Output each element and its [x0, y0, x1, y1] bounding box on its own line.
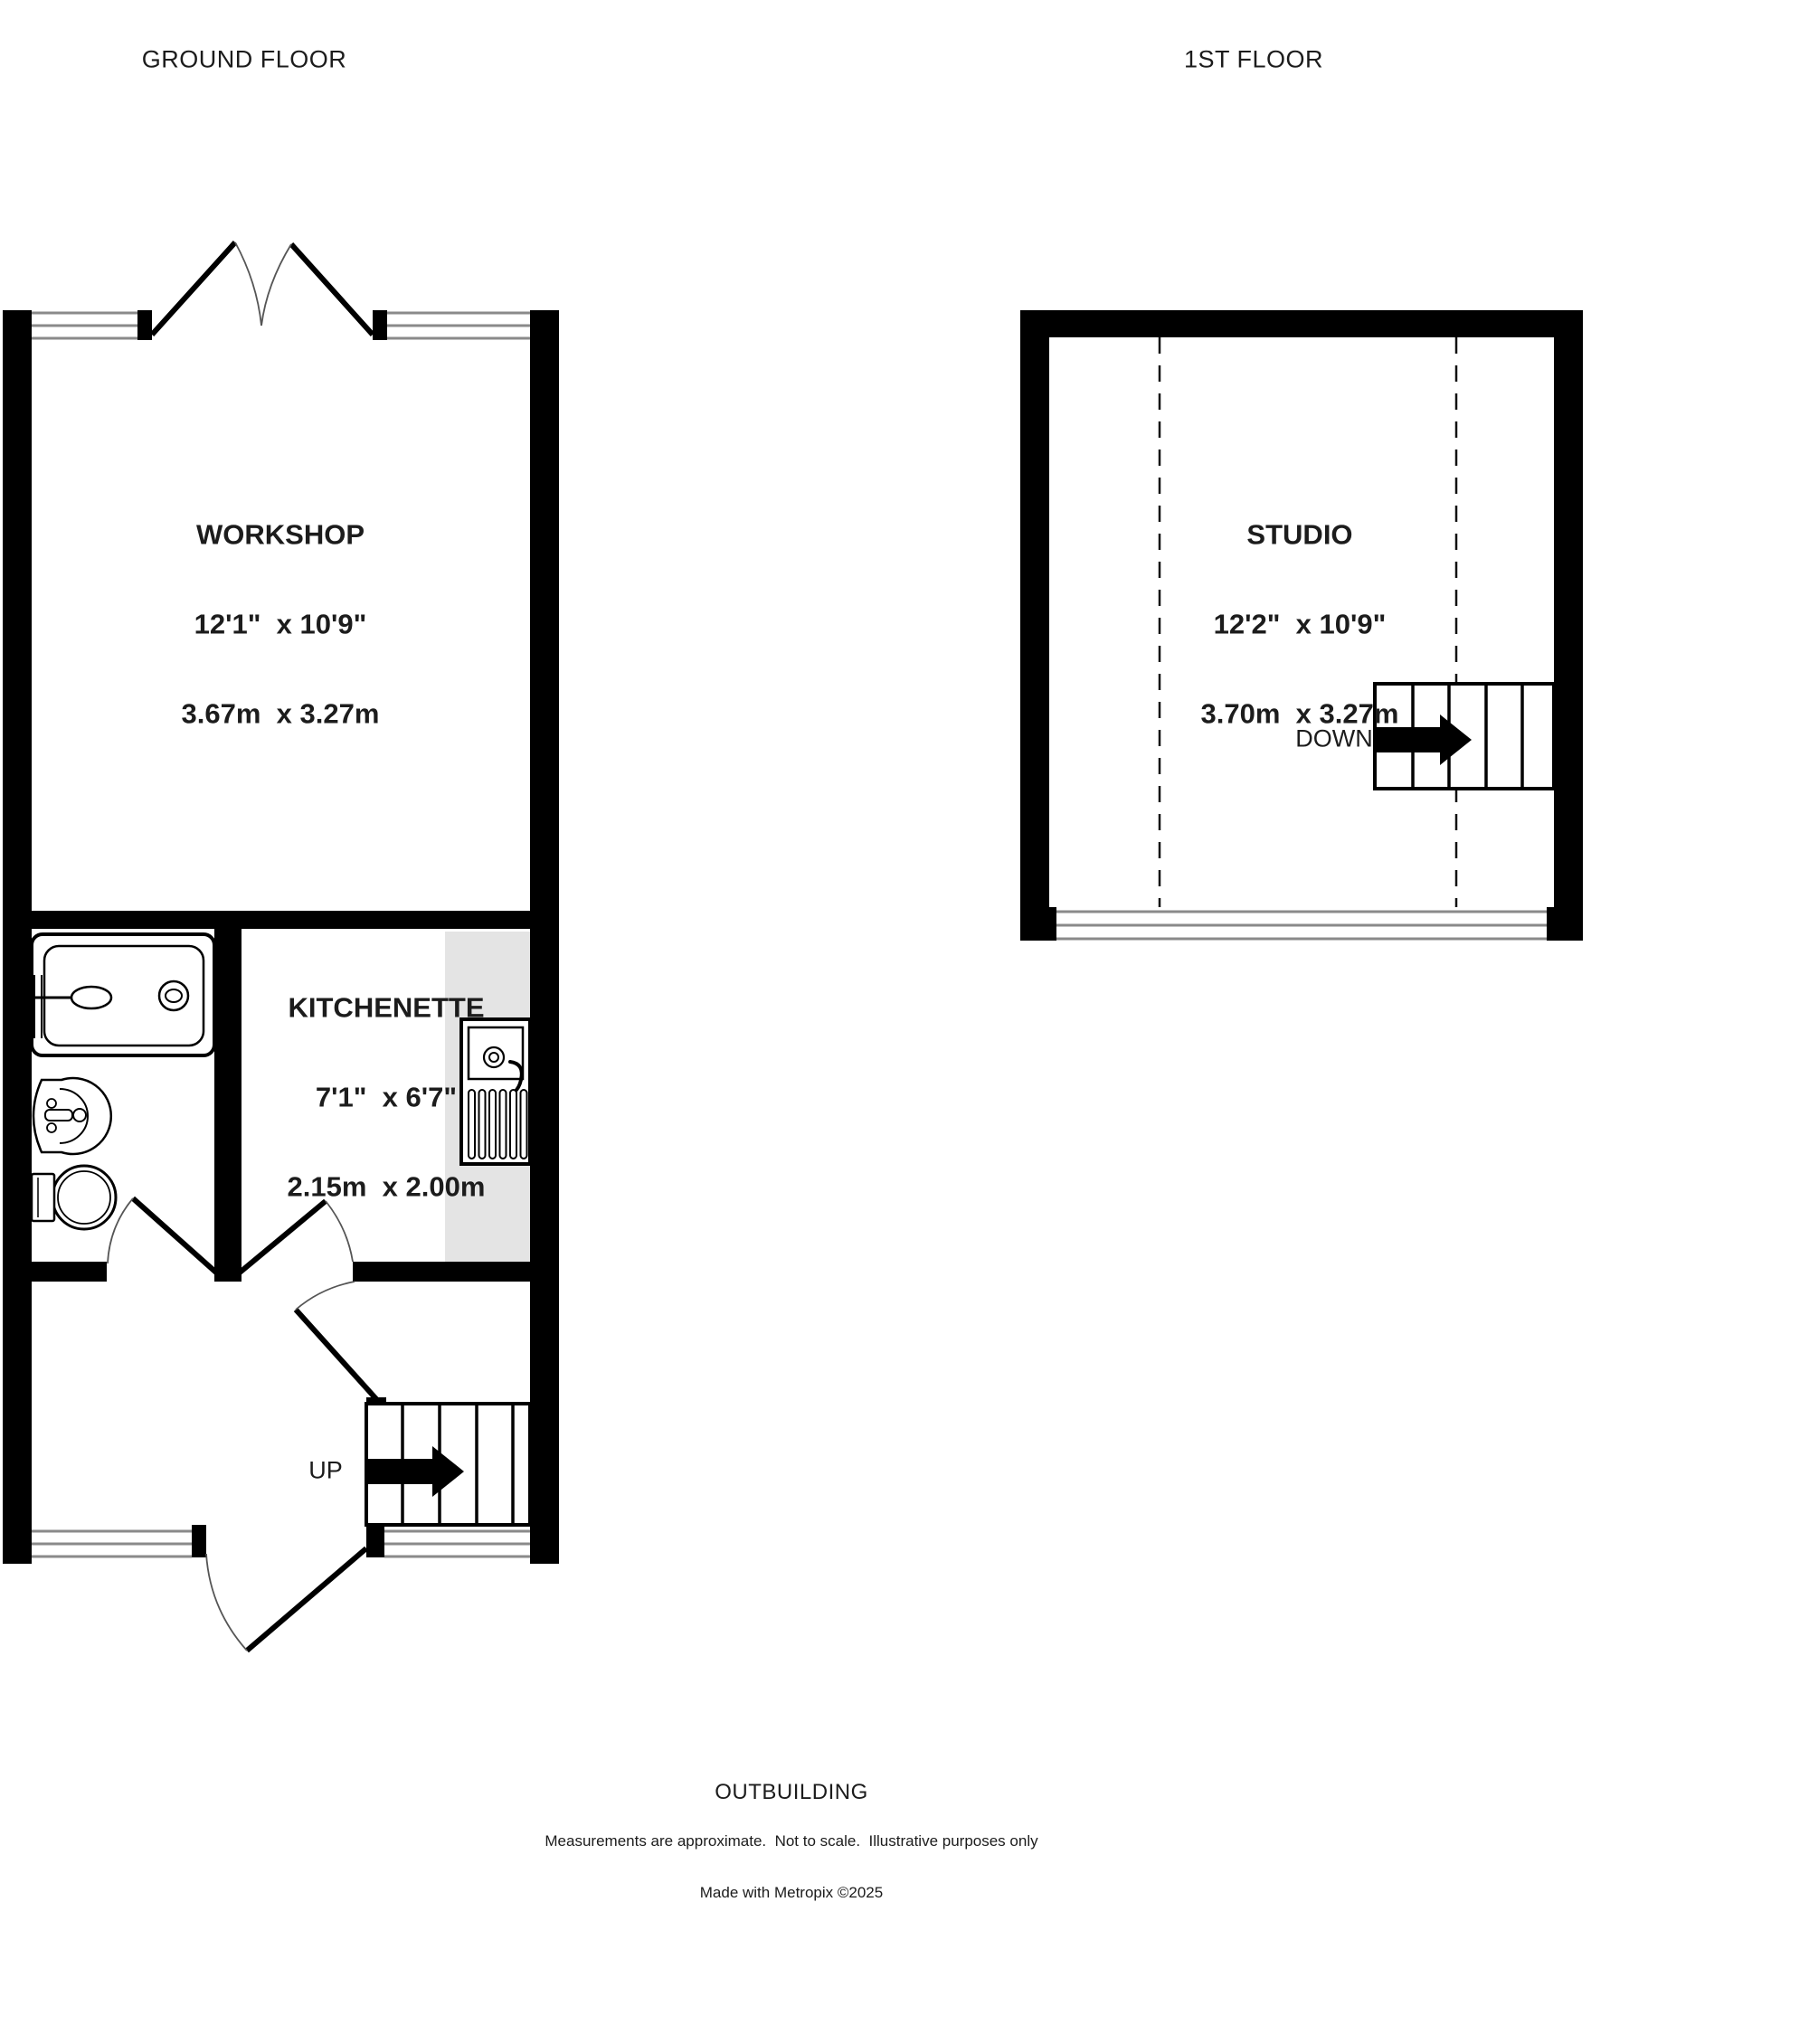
- first-floor-window: [1056, 912, 1547, 939]
- ground-floor-title: GROUND FLOOR: [142, 46, 347, 74]
- exterior-door-symbol: [206, 1548, 366, 1651]
- bathroom-door-symbol: [108, 1198, 216, 1273]
- stairs-up-label: UP: [308, 1457, 343, 1485]
- credit-line: Made with Metropix ©2025: [545, 1884, 1037, 1901]
- kitchenette-label: KITCHENETTE 7'1" x 6'7" 2.15m x 2.00m: [288, 933, 486, 1262]
- staircase-down-symbol: [1375, 684, 1554, 789]
- workshop-name: WORKSHOP: [182, 520, 380, 550]
- stairs-down-label: DOWN: [1295, 725, 1372, 753]
- workshop-size-imperial: 12'1" x 10'9": [182, 610, 380, 639]
- studio-size-imperial: 12'2" x 10'9": [1201, 610, 1399, 639]
- kitchenette-size-imperial: 7'1" x 6'7": [288, 1083, 486, 1112]
- kitchenette-name: KITCHENETTE: [288, 993, 486, 1023]
- staircase-up-symbol: [366, 1404, 530, 1525]
- floorplan-page: GROUND FLOOR 1ST FLOOR WORKSHOP 12'1" x …: [0, 0, 1809, 2044]
- kitchenette-size-metric: 2.15m x 2.00m: [288, 1172, 486, 1202]
- toilet-symbol: [32, 1166, 116, 1229]
- washbasin-symbol: [33, 1078, 111, 1154]
- studio-name: STUDIO: [1201, 520, 1399, 550]
- disclaimer-line: Measurements are approximate. Not to sca…: [545, 1832, 1037, 1850]
- footer-disclaimer: Measurements are approximate. Not to sca…: [545, 1798, 1037, 1935]
- double-door-symbol: [152, 242, 373, 335]
- hall-door-symbol: [296, 1282, 377, 1400]
- bathtub-symbol: [32, 934, 214, 1055]
- workshop-label: WORKSHOP 12'1" x 10'9" 3.67m x 3.27m: [182, 460, 380, 789]
- workshop-size-metric: 3.67m x 3.27m: [182, 699, 380, 729]
- first-floor-title: 1ST FLOOR: [1184, 46, 1323, 74]
- floorplan-drawing: [0, 0, 1809, 2044]
